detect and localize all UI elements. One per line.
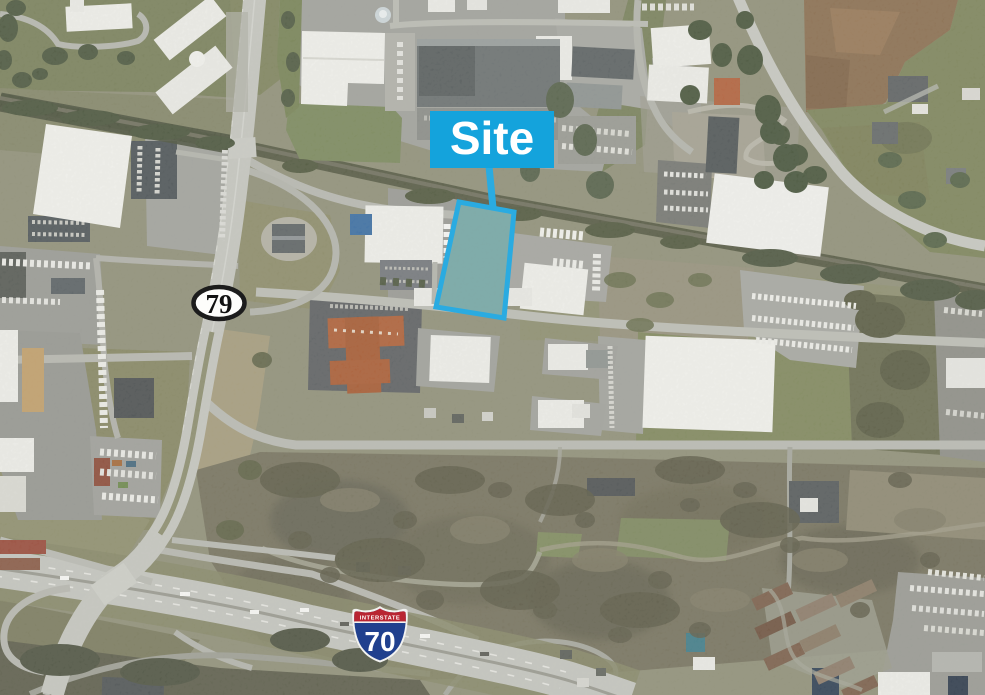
- svg-text:Site: Site: [450, 112, 534, 164]
- svg-text:70: 70: [364, 626, 395, 657]
- svg-text:INTERSTATE: INTERSTATE: [360, 616, 401, 622]
- svg-text:79: 79: [206, 289, 233, 319]
